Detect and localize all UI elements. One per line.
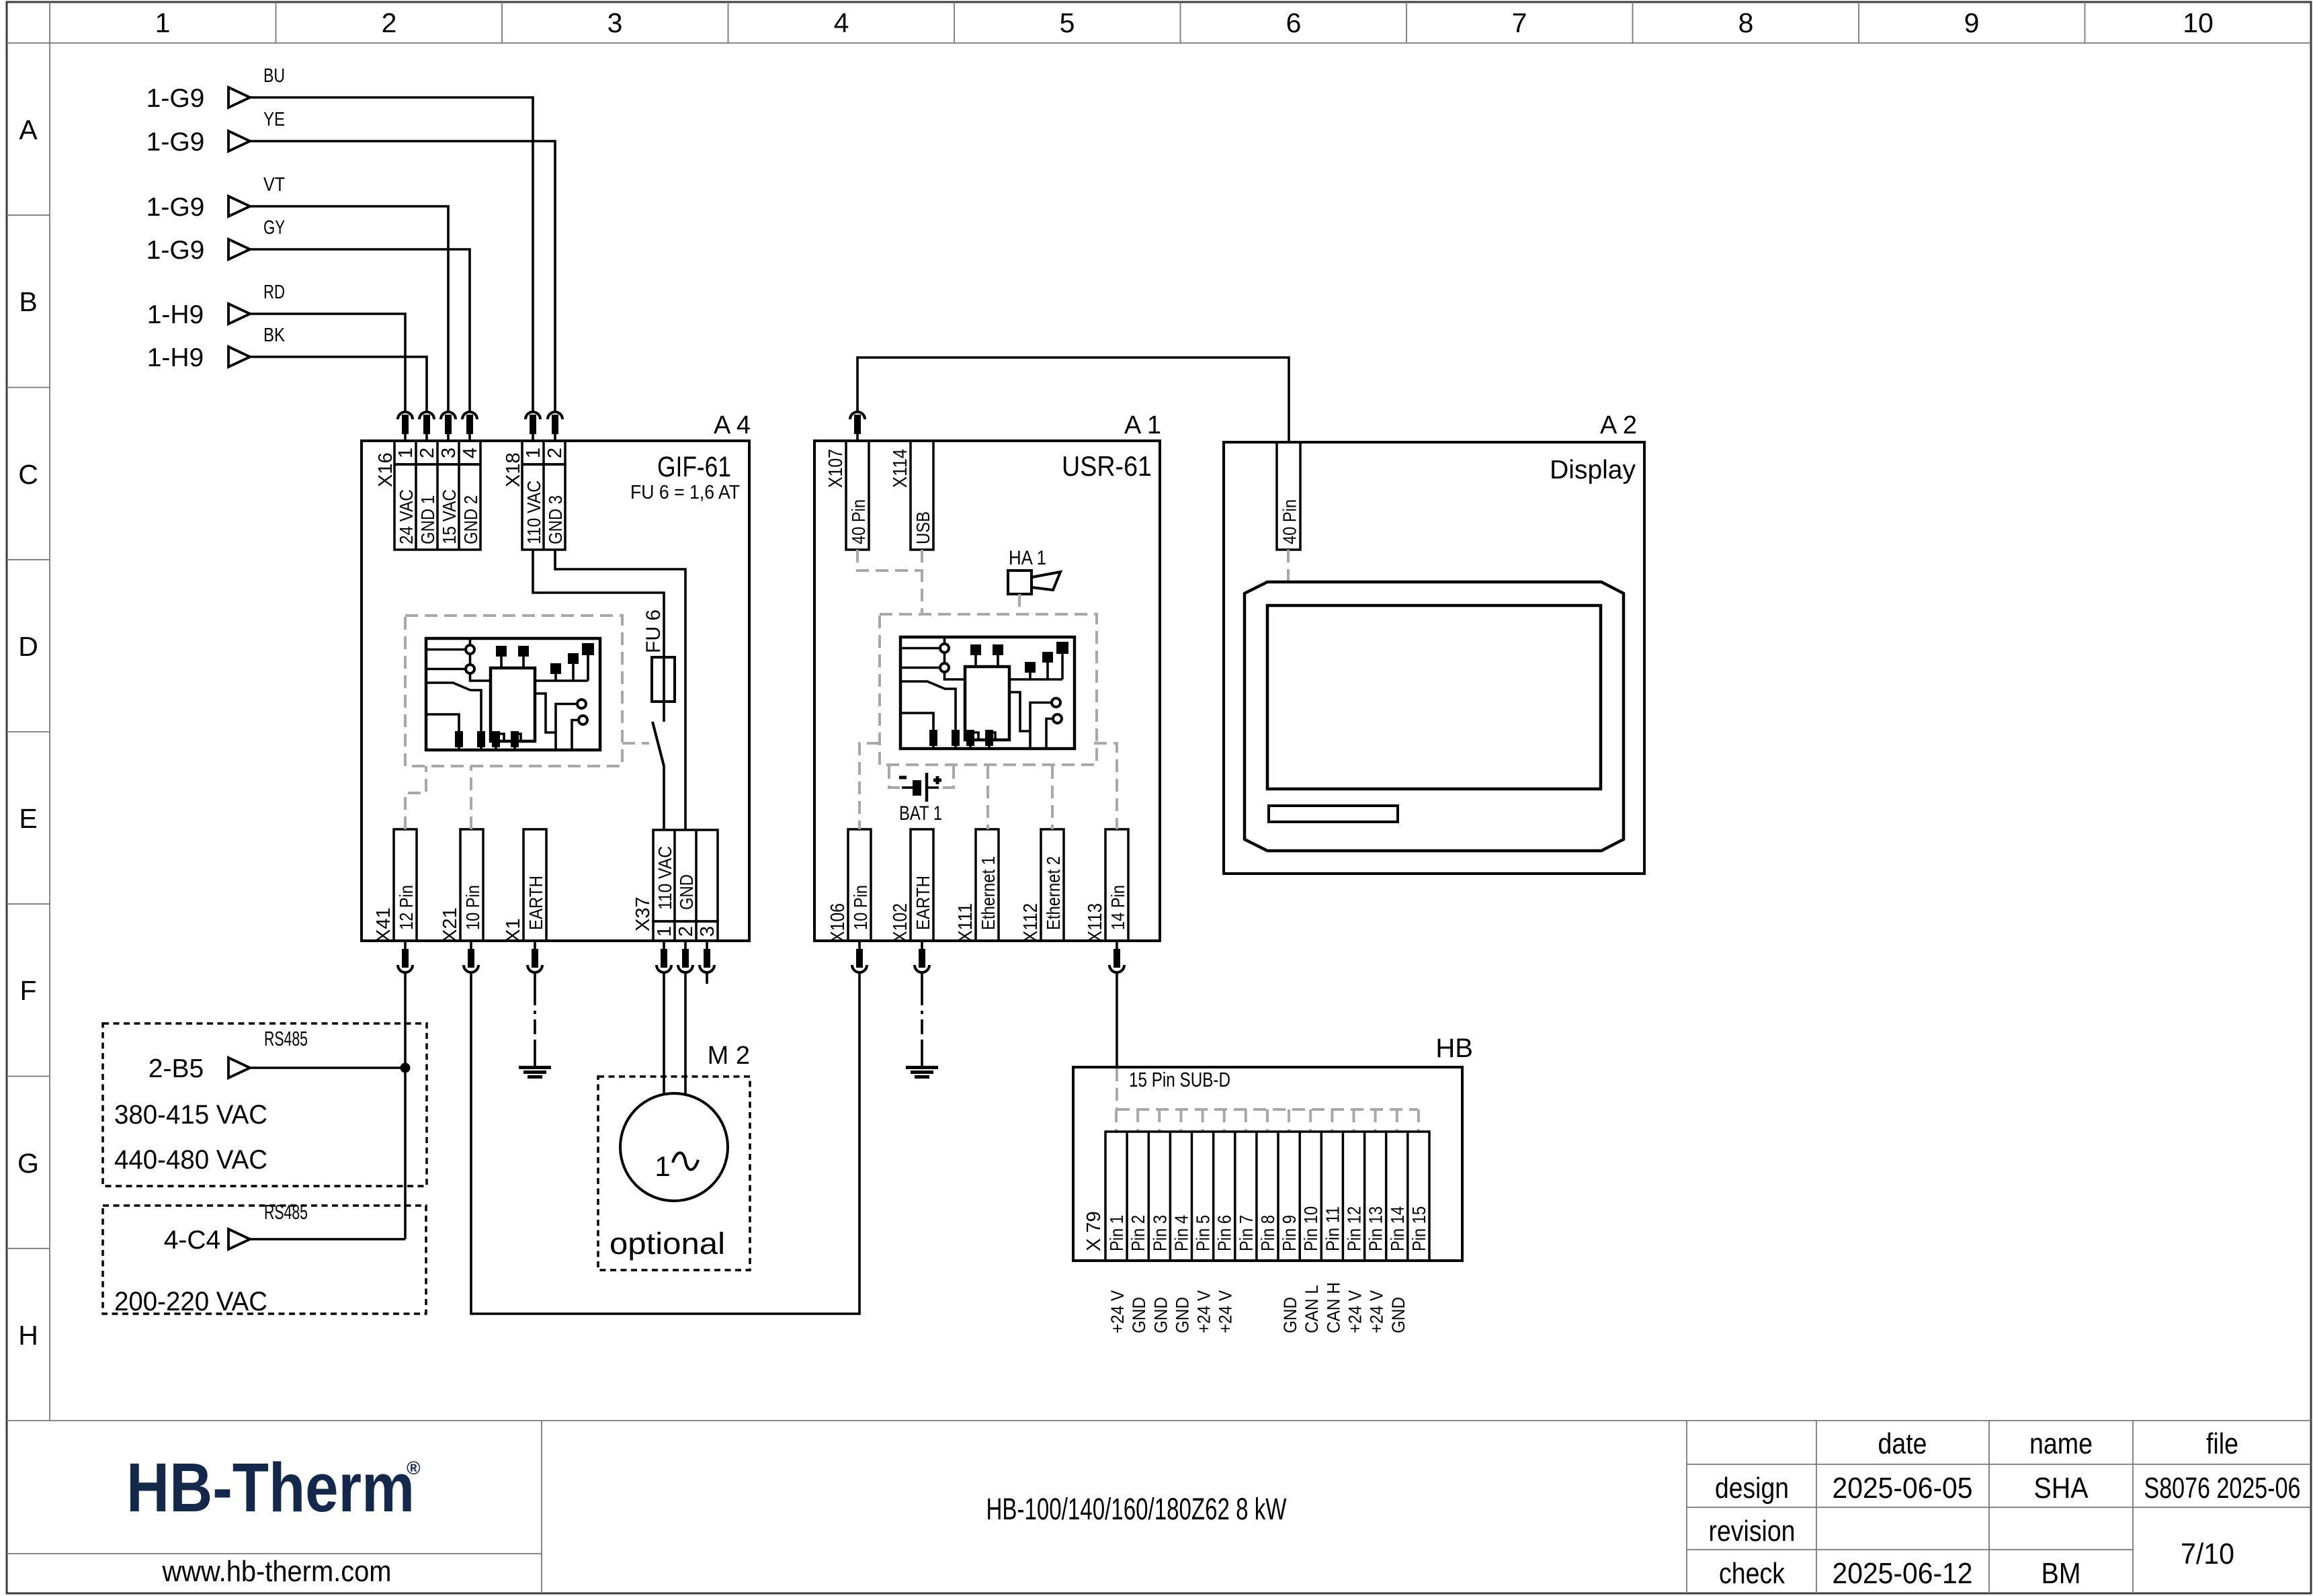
- svg-text:2025-06-12: 2025-06-12: [1833, 1557, 1973, 1590]
- svg-text:GY: GY: [263, 217, 285, 239]
- svg-text:X 79: X 79: [1083, 1211, 1105, 1251]
- svg-text:GND: GND: [1150, 1297, 1171, 1333]
- svg-text:RD: RD: [263, 282, 285, 303]
- svg-text:HB: HB: [1435, 1034, 1473, 1063]
- svg-text:10 Pin: 10 Pin: [850, 885, 871, 930]
- svg-text:X113: X113: [1085, 903, 1106, 942]
- svg-text:HB-Therm: HB-Therm: [126, 1449, 415, 1526]
- svg-text:SHA: SHA: [2034, 1472, 2089, 1505]
- svg-text:X107: X107: [825, 449, 847, 488]
- svg-text:Pin 7: Pin 7: [1236, 1215, 1257, 1251]
- svg-text:Ethernet 1: Ethernet 1: [978, 856, 999, 930]
- svg-text:Display: Display: [1550, 456, 1636, 485]
- svg-text:GND: GND: [1173, 1297, 1193, 1333]
- svg-text:GND: GND: [1129, 1297, 1149, 1333]
- svg-text:40 Pin: 40 Pin: [848, 499, 869, 544]
- svg-text:15 Pin SUB-D: 15 Pin SUB-D: [1129, 1068, 1230, 1091]
- svg-text:2: 2: [544, 448, 566, 458]
- svg-text:2025-06-05: 2025-06-05: [1833, 1472, 1973, 1505]
- svg-text:4: 4: [834, 7, 849, 38]
- svg-text:+24 V: +24 V: [1367, 1290, 1387, 1333]
- svg-text:8: 8: [1738, 7, 1754, 38]
- svg-text:X111: X111: [955, 903, 976, 942]
- svg-text:HB-100/140/160/180Z62 8 kW: HB-100/140/160/180Z62 8 kW: [986, 1492, 1287, 1526]
- svg-text:USR-61: USR-61: [1062, 450, 1152, 482]
- svg-text:HA 1: HA 1: [1009, 547, 1046, 569]
- svg-text:1: 1: [155, 7, 171, 38]
- svg-text:M 2: M 2: [708, 1042, 750, 1070]
- svg-text:4-C4: 4-C4: [164, 1226, 221, 1255]
- svg-text:GND 2: GND 2: [460, 495, 481, 544]
- svg-text:GND: GND: [1280, 1297, 1300, 1333]
- svg-text:1: 1: [654, 926, 675, 937]
- svg-text:200-220 VAC: 200-220 VAC: [114, 1287, 267, 1316]
- svg-text:F: F: [19, 975, 36, 1006]
- svg-text:Pin 5: Pin 5: [1193, 1215, 1214, 1251]
- svg-text:X106: X106: [827, 903, 849, 942]
- svg-text:110 VAC: 110 VAC: [523, 480, 544, 544]
- svg-text:FU 6 = 1,6 AT: FU 6 = 1,6 AT: [630, 482, 740, 503]
- svg-text:1-G9: 1-G9: [146, 84, 205, 113]
- svg-text:BAT 1: BAT 1: [899, 802, 942, 825]
- svg-text:RS485: RS485: [264, 1200, 308, 1224]
- svg-text:24 VAC: 24 VAC: [396, 489, 417, 544]
- svg-text:YE: YE: [263, 109, 285, 130]
- svg-text:1: 1: [523, 448, 544, 458]
- svg-text:VT: VT: [263, 174, 285, 196]
- svg-text:BU: BU: [263, 65, 285, 87]
- svg-text:Pin 15: Pin 15: [1408, 1206, 1429, 1251]
- svg-text:D: D: [18, 631, 38, 662]
- svg-text:file: file: [2206, 1427, 2238, 1460]
- svg-text:+24 V: +24 V: [1216, 1290, 1236, 1333]
- svg-text:7: 7: [1512, 7, 1527, 38]
- svg-text:12 Pin: 12 Pin: [396, 885, 417, 930]
- svg-text:®: ®: [407, 1458, 421, 1478]
- svg-text:Pin 9: Pin 9: [1279, 1215, 1300, 1251]
- svg-text:Pin 4: Pin 4: [1171, 1215, 1192, 1251]
- svg-text:A 2: A 2: [1600, 411, 1637, 439]
- svg-text:2-B5: 2-B5: [149, 1054, 204, 1083]
- svg-text:1-G9: 1-G9: [146, 128, 205, 157]
- svg-text:X21: X21: [439, 907, 461, 942]
- svg-text:1: 1: [655, 1150, 670, 1182]
- svg-text:380-415 VAC: 380-415 VAC: [114, 1100, 267, 1130]
- svg-text:EARTH: EARTH: [913, 876, 933, 930]
- svg-text:1-G9: 1-G9: [146, 236, 205, 265]
- svg-text:10 Pin: 10 Pin: [462, 885, 483, 930]
- svg-text:FU 6: FU 6: [642, 610, 665, 653]
- svg-text:110 VAC: 110 VAC: [655, 846, 675, 910]
- svg-text:14 Pin: 14 Pin: [1107, 885, 1128, 930]
- svg-text:X37: X37: [632, 896, 654, 931]
- svg-text:name: name: [2029, 1427, 2093, 1460]
- svg-text:Pin 2: Pin 2: [1128, 1215, 1148, 1251]
- svg-text:+24 V: +24 V: [1194, 1290, 1214, 1333]
- svg-text:date: date: [1878, 1427, 1927, 1460]
- svg-text:Pin 10: Pin 10: [1300, 1206, 1321, 1251]
- svg-text:10: 10: [2183, 7, 2214, 38]
- svg-text:Pin 3: Pin 3: [1149, 1215, 1170, 1251]
- svg-text:GIF-61: GIF-61: [657, 451, 731, 483]
- svg-text:BK: BK: [263, 325, 286, 346]
- svg-text:3: 3: [607, 7, 623, 38]
- svg-text:B: B: [19, 286, 37, 317]
- svg-text:7/10: 7/10: [2181, 1538, 2234, 1570]
- svg-text:1-G9: 1-G9: [146, 193, 205, 222]
- svg-text:Pin 1: Pin 1: [1106, 1215, 1127, 1251]
- svg-text:440-480 VAC: 440-480 VAC: [114, 1145, 267, 1175]
- svg-text:4: 4: [460, 448, 481, 458]
- svg-text:GND: GND: [1388, 1297, 1408, 1333]
- svg-text:check: check: [1719, 1557, 1785, 1590]
- svg-text:A: A: [19, 114, 38, 145]
- svg-text:revision: revision: [1709, 1515, 1796, 1548]
- svg-text:40 Pin: 40 Pin: [1279, 499, 1300, 544]
- svg-text:2: 2: [675, 926, 697, 937]
- svg-text:E: E: [19, 803, 37, 834]
- svg-text:Ethernet 2: Ethernet 2: [1043, 856, 1064, 930]
- svg-text:EARTH: EARTH: [525, 876, 546, 930]
- svg-text:Pin 8: Pin 8: [1257, 1215, 1278, 1251]
- svg-text:3: 3: [697, 926, 718, 937]
- svg-text:2: 2: [417, 448, 438, 458]
- svg-text:9: 9: [1964, 7, 1980, 38]
- svg-text:X1: X1: [503, 919, 524, 942]
- svg-text:BM: BM: [2042, 1557, 2081, 1590]
- svg-text:1-H9: 1-H9: [147, 300, 204, 329]
- svg-text:www.hb-therm.com: www.hb-therm.com: [162, 1555, 392, 1588]
- svg-text:GND 3: GND 3: [545, 495, 566, 544]
- svg-text:2: 2: [382, 7, 397, 38]
- svg-text:+24 V: +24 V: [1107, 1290, 1128, 1333]
- svg-text:X114: X114: [890, 449, 911, 488]
- svg-text:1: 1: [395, 448, 417, 458]
- svg-text:CAN H: CAN H: [1323, 1282, 1343, 1333]
- svg-text:5: 5: [1060, 7, 1075, 38]
- svg-text:X102: X102: [890, 903, 911, 942]
- svg-text:X112: X112: [1020, 903, 1042, 942]
- svg-text:Pin 13: Pin 13: [1365, 1206, 1386, 1251]
- svg-text:1-H9: 1-H9: [147, 343, 204, 372]
- svg-text:X16: X16: [375, 452, 396, 487]
- svg-text:X18: X18: [503, 452, 524, 487]
- svg-text:Pin 12: Pin 12: [1344, 1206, 1365, 1251]
- svg-text:G: G: [17, 1148, 39, 1179]
- svg-text:C: C: [18, 459, 38, 490]
- svg-text:S8076 2025-06: S8076 2025-06: [2144, 1472, 2301, 1505]
- svg-text:A 4: A 4: [714, 411, 751, 439]
- svg-text:Pin 6: Pin 6: [1214, 1215, 1235, 1251]
- svg-text:Pin 14: Pin 14: [1387, 1206, 1408, 1251]
- svg-text:CAN L: CAN L: [1302, 1285, 1322, 1333]
- svg-text:design: design: [1715, 1472, 1789, 1505]
- svg-text:+24 V: +24 V: [1345, 1290, 1365, 1333]
- svg-text:15 VAC: 15 VAC: [439, 489, 460, 544]
- svg-text:A 1: A 1: [1124, 411, 1161, 439]
- svg-text:USB: USB: [913, 511, 933, 544]
- svg-text:RS485: RS485: [264, 1027, 308, 1050]
- svg-text:H: H: [18, 1320, 38, 1351]
- svg-text:3: 3: [438, 448, 460, 458]
- svg-text:6: 6: [1286, 7, 1302, 38]
- svg-text:X41: X41: [373, 907, 394, 942]
- svg-text:Pin 11: Pin 11: [1322, 1206, 1343, 1251]
- svg-text:GND: GND: [676, 874, 697, 910]
- svg-text:GND 1: GND 1: [417, 495, 438, 544]
- svg-text:optional: optional: [609, 1226, 725, 1261]
